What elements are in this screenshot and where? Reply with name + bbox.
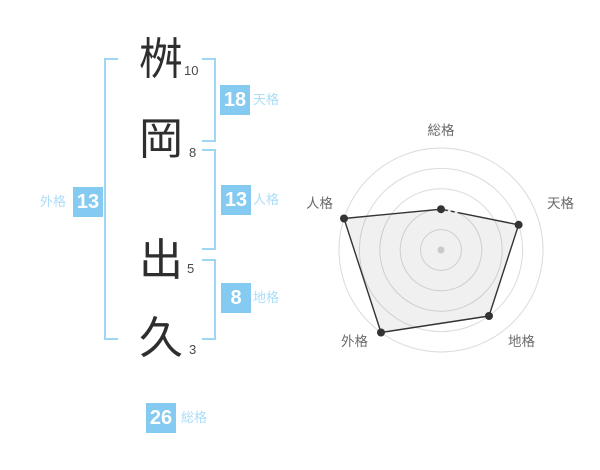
chikaku-bracket xyxy=(202,259,216,340)
stroke-count-4: 3 xyxy=(189,343,196,357)
radar-label-chikaku: 地格 xyxy=(508,334,536,349)
gaikaku-value-badge: 13 xyxy=(73,187,103,217)
radar-label-jinkaku: 人格 xyxy=(306,196,333,211)
tenkaku-value-badge: 18 xyxy=(220,85,250,115)
given-char-1: 出 xyxy=(134,239,188,283)
chikaku-label: 地格 xyxy=(253,283,279,313)
jinkaku-bracket xyxy=(202,149,216,250)
stroke-count-2: 8 xyxy=(189,146,196,160)
gaikaku-bracket xyxy=(104,58,118,340)
tenkaku-bracket xyxy=(202,58,216,142)
stroke-count-3: 5 xyxy=(187,262,194,276)
gaikaku-label: 外格 xyxy=(38,187,66,217)
jinkaku-value-badge: 13 xyxy=(221,185,251,215)
soukaku-value-badge: 26 xyxy=(146,403,176,433)
radar-center-dot xyxy=(438,247,445,254)
radar-label-tenkaku: 天格 xyxy=(547,196,575,211)
jinkaku-label: 人格 xyxy=(253,185,279,215)
surname-char-2: 岡 xyxy=(134,118,188,162)
name-fortune-panel: 桝 岡 出 久 10 8 5 3 18 天格 13 人格 8 地格 外格 13 … xyxy=(0,0,600,470)
radar-label-gaikaku: 外格 xyxy=(341,334,368,349)
given-char-2: 久 xyxy=(134,317,188,361)
chikaku-value-badge: 8 xyxy=(221,283,251,313)
stroke-count-1: 10 xyxy=(184,64,198,78)
radar-chart: 総格 天格 地格 外格 人格 xyxy=(290,110,590,370)
tenkaku-label: 天格 xyxy=(253,85,279,115)
soukaku-label: 総格 xyxy=(181,403,207,433)
surname-char-1: 桝 xyxy=(134,38,188,82)
radar-label-soukaku: 総格 xyxy=(428,123,455,138)
